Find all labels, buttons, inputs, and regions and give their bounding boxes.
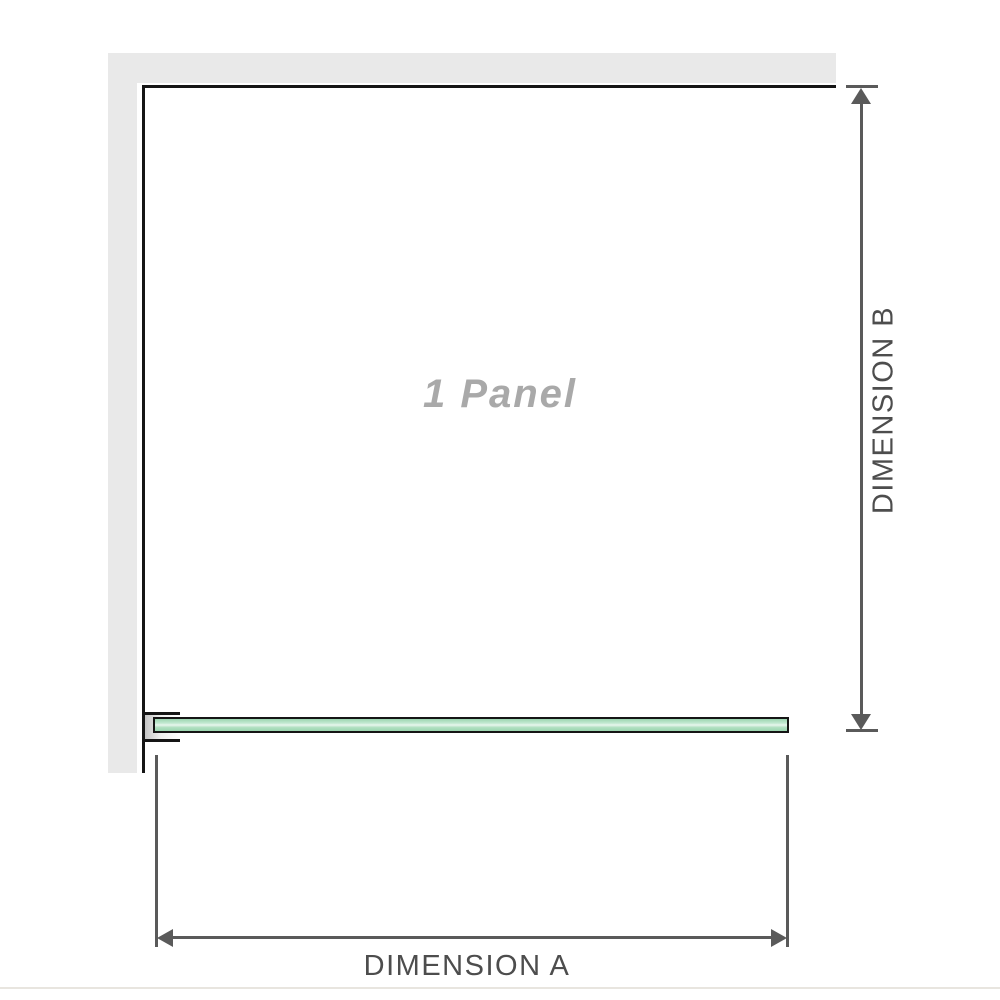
dimension-a-extension-right bbox=[786, 755, 789, 947]
wall-top bbox=[108, 53, 836, 83]
arrow-right-icon bbox=[771, 929, 787, 947]
diagram-canvas: 1 Panel DIMENSION B DIMENSION A bbox=[0, 0, 1000, 1000]
panel-outline bbox=[142, 85, 836, 773]
page-bottom-rule bbox=[0, 987, 1000, 989]
dimension-a-label: DIMENSION A bbox=[157, 950, 777, 983]
arrow-left-icon bbox=[157, 929, 173, 947]
wall-left bbox=[108, 53, 137, 773]
glass-panel bbox=[153, 717, 789, 733]
dimension-a-extension-left bbox=[155, 755, 158, 947]
panel-label: 1 Panel bbox=[160, 372, 840, 417]
arrow-down-icon bbox=[851, 714, 871, 730]
dimension-b-label: DIMENSION B bbox=[868, 306, 901, 514]
arrow-up-icon bbox=[851, 88, 871, 104]
dimension-a-line bbox=[161, 936, 783, 939]
dimension-b-line bbox=[860, 95, 863, 723]
